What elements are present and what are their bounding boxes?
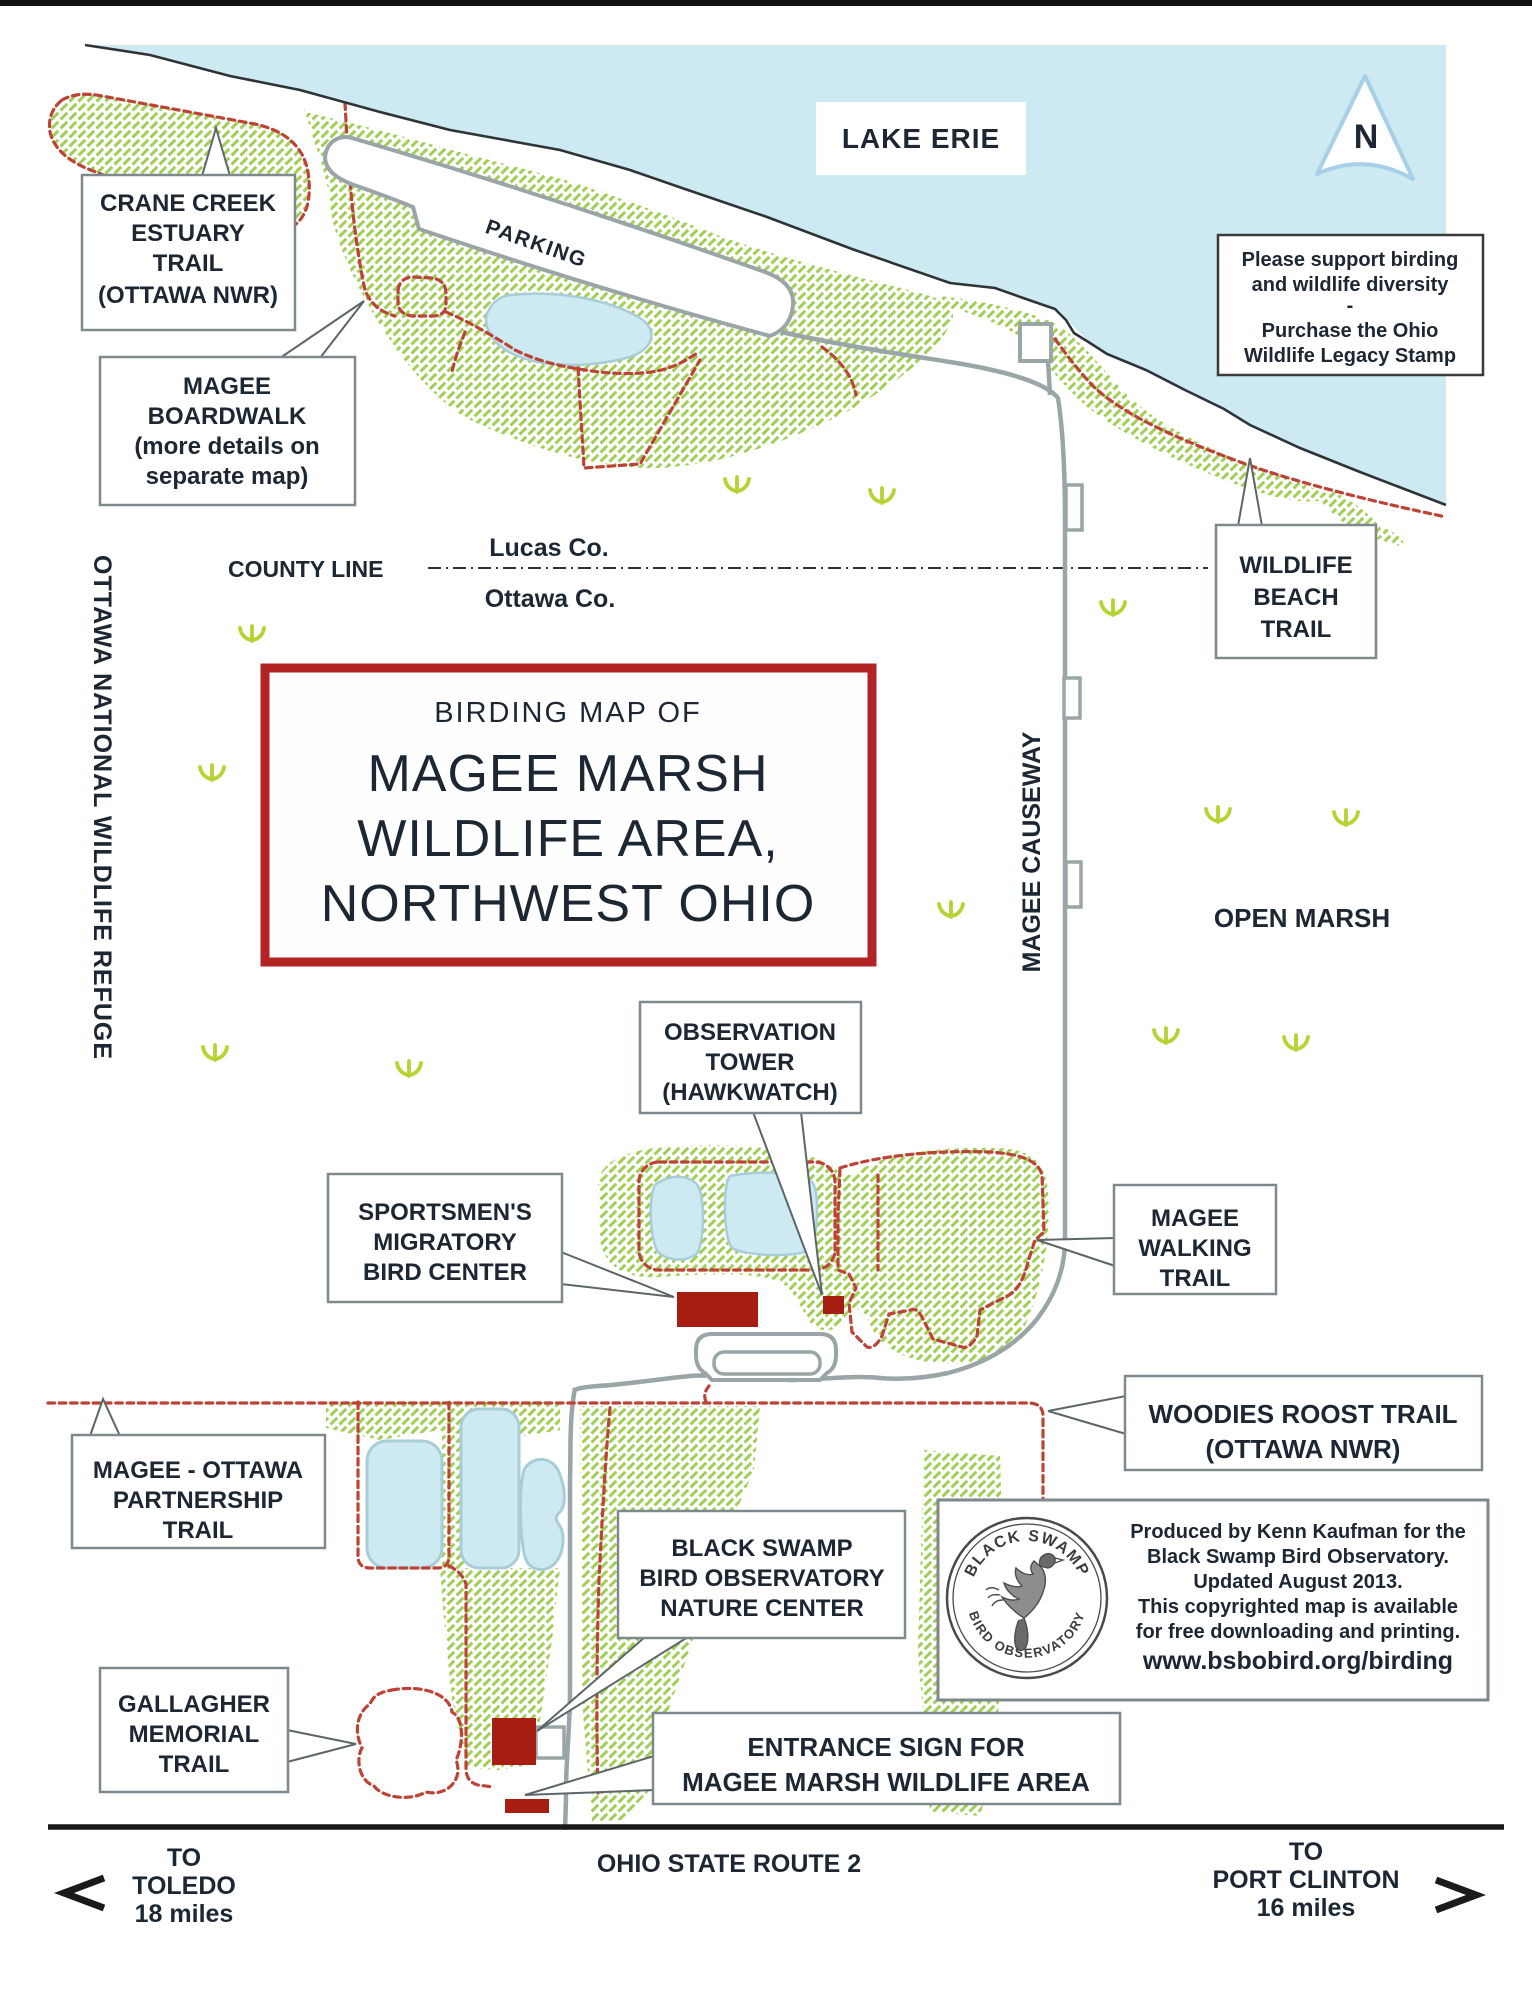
svg-text:(HAWKWATCH): (HAWKWATCH)	[662, 1079, 838, 1106]
svg-text:N: N	[1354, 118, 1379, 156]
svg-text:OBSERVATION: OBSERVATION	[664, 1019, 836, 1046]
svg-text:separate map): separate map)	[146, 463, 309, 490]
svg-text:TO: TO	[167, 1844, 201, 1872]
svg-text:TRAIL: TRAIL	[1261, 616, 1332, 643]
svg-text:TRAIL: TRAIL	[153, 250, 224, 277]
svg-text:TO: TO	[1289, 1838, 1323, 1866]
svg-text:WALKING: WALKING	[1138, 1235, 1251, 1262]
svg-text:LAKE ERIE: LAKE ERIE	[842, 123, 1000, 154]
svg-text:16 miles: 16 miles	[1257, 1894, 1356, 1922]
svg-text:PARTNERSHIP: PARTNERSHIP	[113, 1487, 283, 1514]
svg-text:BIRD CENTER: BIRD CENTER	[363, 1259, 527, 1286]
svg-text:(OTTAWA NWR): (OTTAWA NWR)	[1206, 1434, 1401, 1464]
svg-text:WILDLIFE AREA,: WILDLIFE AREA,	[357, 810, 778, 868]
svg-text:OTTAWA NATIONAL WILDLIFE REFUG: OTTAWA NATIONAL WILDLIFE REFUGE	[88, 555, 116, 1060]
svg-text:Black Swamp Bird Observatory.: Black Swamp Bird Observatory.	[1147, 1546, 1449, 1568]
svg-text:WILDLIFE: WILDLIFE	[1239, 552, 1352, 579]
svg-text:BLACK SWAMP: BLACK SWAMP	[671, 1535, 852, 1562]
svg-text:SPORTSMEN'S: SPORTSMEN'S	[358, 1199, 532, 1226]
svg-text:BEACH: BEACH	[1253, 584, 1338, 611]
svg-text:BIRD OBSERVATORY: BIRD OBSERVATORY	[639, 1565, 884, 1592]
svg-text:GALLAGHER: GALLAGHER	[118, 1691, 270, 1718]
svg-text:MAGEE: MAGEE	[183, 373, 271, 400]
svg-text:for free downloading and print: for free downloading and printing.	[1136, 1621, 1460, 1643]
svg-text:WOODIES ROOST TRAIL: WOODIES ROOST TRAIL	[1148, 1399, 1457, 1429]
svg-text:ESTUARY: ESTUARY	[131, 220, 245, 247]
svg-text:Purchase the Ohio: Purchase the Ohio	[1262, 320, 1439, 342]
svg-text:18 miles: 18 miles	[135, 1900, 234, 1928]
svg-text:TRAIL: TRAIL	[1160, 1265, 1231, 1292]
svg-text:TOLEDO: TOLEDO	[132, 1872, 236, 1900]
svg-text:-: -	[1347, 295, 1354, 317]
svg-text:PORT CLINTON: PORT CLINTON	[1212, 1866, 1399, 1894]
svg-text:BIRDING MAP OF: BIRDING MAP OF	[434, 697, 702, 729]
svg-text:BOARDWALK: BOARDWALK	[148, 403, 307, 430]
svg-text:TOWER: TOWER	[706, 1049, 795, 1076]
svg-text:Ottawa Co.: Ottawa Co.	[485, 585, 616, 613]
svg-text:TRAIL: TRAIL	[159, 1751, 230, 1778]
svg-text:CRANE CREEK: CRANE CREEK	[100, 190, 277, 217]
svg-text:ENTRANCE SIGN FOR: ENTRANCE SIGN FOR	[747, 1732, 1025, 1762]
svg-text:OHIO STATE ROUTE 2: OHIO STATE ROUTE 2	[597, 1850, 861, 1878]
svg-text:(more details on: (more details on	[134, 433, 319, 460]
svg-text:(OTTAWA NWR): (OTTAWA NWR)	[98, 282, 278, 309]
svg-text:NATURE CENTER: NATURE CENTER	[660, 1595, 864, 1622]
svg-text:MEMORIAL: MEMORIAL	[129, 1721, 260, 1748]
svg-text:OPEN MARSH: OPEN MARSH	[1214, 903, 1390, 933]
svg-text:Wildlife Legacy Stamp: Wildlife Legacy Stamp	[1244, 345, 1456, 367]
svg-text:MAGEE CAUSEWAY: MAGEE CAUSEWAY	[1018, 731, 1046, 972]
svg-text:COUNTY LINE: COUNTY LINE	[228, 556, 383, 582]
svg-text:Produced by Kenn Kaufman for t: Produced by Kenn Kaufman for the	[1130, 1521, 1466, 1543]
svg-text:MAGEE MARSH WILDLIFE AREA: MAGEE MARSH WILDLIFE AREA	[682, 1767, 1090, 1797]
svg-text:This copyrighted map is availa: This copyrighted map is available	[1138, 1596, 1458, 1618]
svg-text:www.bsbobird.org/birding: www.bsbobird.org/birding	[1142, 1647, 1453, 1675]
svg-text:NORTHWEST OHIO: NORTHWEST OHIO	[321, 875, 816, 933]
svg-text:MAGEE MARSH: MAGEE MARSH	[367, 745, 768, 803]
svg-text:Updated August 2013.: Updated August 2013.	[1193, 1571, 1402, 1593]
svg-text:MAGEE: MAGEE	[1151, 1205, 1239, 1232]
svg-text:Please support birding: Please support birding	[1242, 249, 1459, 271]
svg-text:TRAIL: TRAIL	[163, 1517, 234, 1544]
svg-text:MIGRATORY: MIGRATORY	[373, 1229, 517, 1256]
svg-text:and wildlife diversity: and wildlife diversity	[1252, 274, 1450, 296]
svg-text:MAGEE - OTTAWA: MAGEE - OTTAWA	[93, 1457, 303, 1484]
svg-text:Lucas Co.: Lucas Co.	[489, 534, 608, 562]
